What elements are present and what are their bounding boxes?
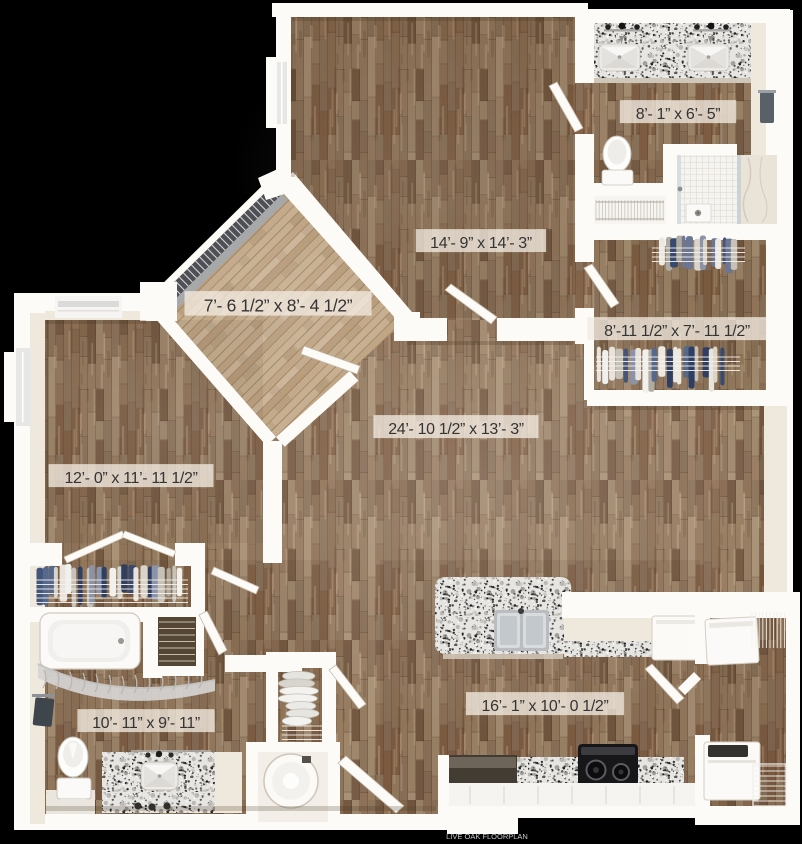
- svg-text:8’-11 1/2” x 7’- 11 1/2”: 8’-11 1/2” x 7’- 11 1/2”: [604, 323, 750, 340]
- svg-text:LIVE OAK FLOORPLAN: LIVE OAK FLOORPLAN: [446, 832, 528, 841]
- svg-text:10’- 11” x 9’- 11”: 10’- 11” x 9’- 11”: [92, 715, 200, 732]
- svg-text:14’- 9” x 14’- 3”: 14’- 9” x 14’- 3”: [430, 235, 532, 252]
- svg-text:8’- 1” x 6’- 5”: 8’- 1” x 6’- 5”: [636, 106, 721, 123]
- svg-text:7’- 6 1/2” x 8’- 4 1/2”: 7’- 6 1/2” x 8’- 4 1/2”: [204, 295, 353, 315]
- svg-text:16’- 1” x 10’- 0 1/2”: 16’- 1” x 10’- 0 1/2”: [482, 698, 609, 715]
- svg-text:24’- 10 1/2” x 13’- 3”: 24’- 10 1/2” x 13’- 3”: [388, 421, 524, 438]
- svg-text:12’- 0” x 11’- 11 1/2”: 12’- 0” x 11’- 11 1/2”: [64, 470, 197, 487]
